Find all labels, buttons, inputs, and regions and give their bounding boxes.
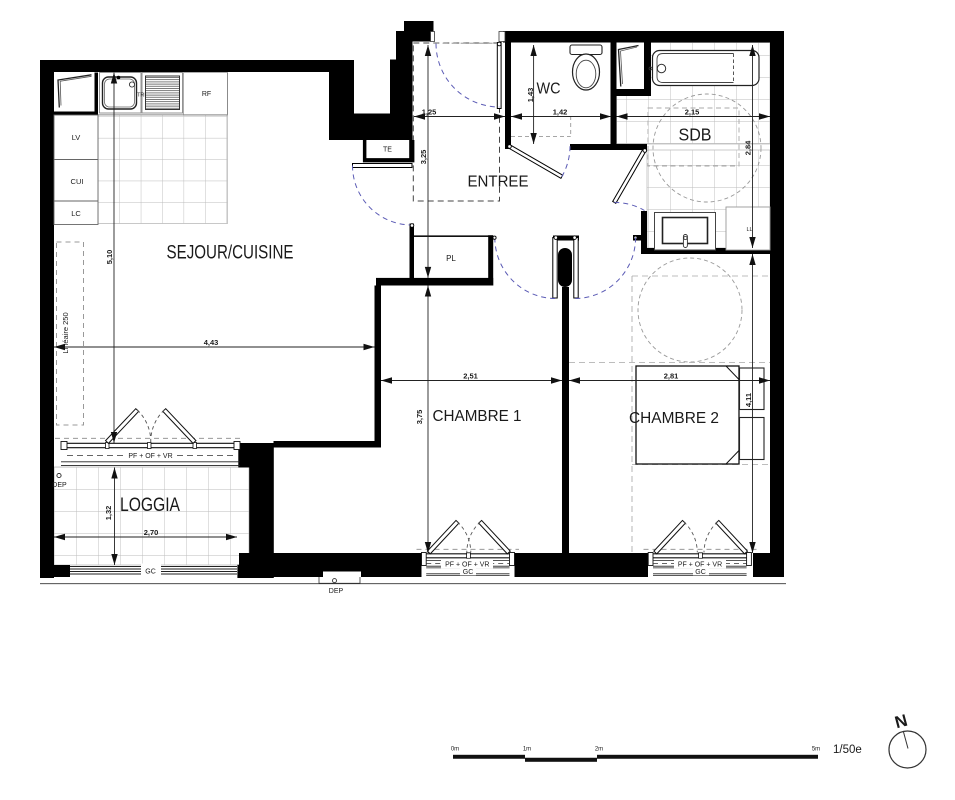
svg-text:CUI: CUI [71, 177, 84, 186]
svg-text:LL: LL [746, 227, 752, 233]
svg-text:LOGGIA: LOGGIA [120, 495, 180, 516]
svg-text:3,25: 3,25 [419, 150, 428, 165]
svg-text:3,75: 3,75 [415, 410, 424, 425]
svg-text:DEP: DEP [52, 482, 67, 489]
svg-text:4,11: 4,11 [744, 393, 753, 407]
svg-text:LV: LV [72, 133, 81, 142]
svg-text:1,42: 1,42 [553, 107, 568, 116]
svg-text:2m: 2m [595, 747, 603, 753]
svg-text:CHAMBRE 1: CHAMBRE 1 [433, 408, 522, 425]
svg-text:SDB: SDB [679, 125, 712, 145]
svg-text:DEP: DEP [329, 588, 344, 595]
svg-text:4,43: 4,43 [204, 338, 219, 347]
svg-text:2,70: 2,70 [144, 528, 159, 537]
svg-text:2,84: 2,84 [744, 140, 753, 155]
svg-text:TE: TE [383, 147, 392, 154]
svg-text:5m: 5m [812, 747, 820, 753]
svg-text:5,10: 5,10 [105, 250, 114, 265]
svg-text:0m: 0m [451, 747, 459, 753]
svg-text:GC: GC [695, 569, 706, 576]
svg-text:2,51: 2,51 [463, 371, 478, 380]
svg-text:RF: RF [202, 91, 211, 98]
svg-text:1/50e: 1/50e [833, 744, 862, 756]
svg-text:1,43: 1,43 [526, 88, 535, 103]
svg-text:1,32: 1,32 [104, 506, 113, 521]
svg-text:1,25: 1,25 [422, 107, 437, 116]
svg-text:ENTREE: ENTREE [468, 174, 529, 191]
svg-text:SEJOUR/CUISINE: SEJOUR/CUISINE [167, 243, 294, 264]
svg-text:WC: WC [537, 81, 561, 98]
svg-text:PL: PL [446, 254, 456, 263]
svg-text:LC: LC [71, 209, 81, 218]
svg-text:CHAMBRE 2: CHAMBRE 2 [629, 410, 719, 427]
svg-text:TRI: TRI [137, 93, 146, 99]
svg-text:PF + OF + VR: PF + OF + VR [128, 453, 172, 460]
svg-text:GC: GC [145, 568, 156, 575]
svg-text:GC: GC [463, 569, 474, 576]
svg-text:1m: 1m [523, 747, 531, 753]
svg-text:2,81: 2,81 [664, 371, 679, 380]
svg-text:2,15: 2,15 [685, 107, 700, 116]
